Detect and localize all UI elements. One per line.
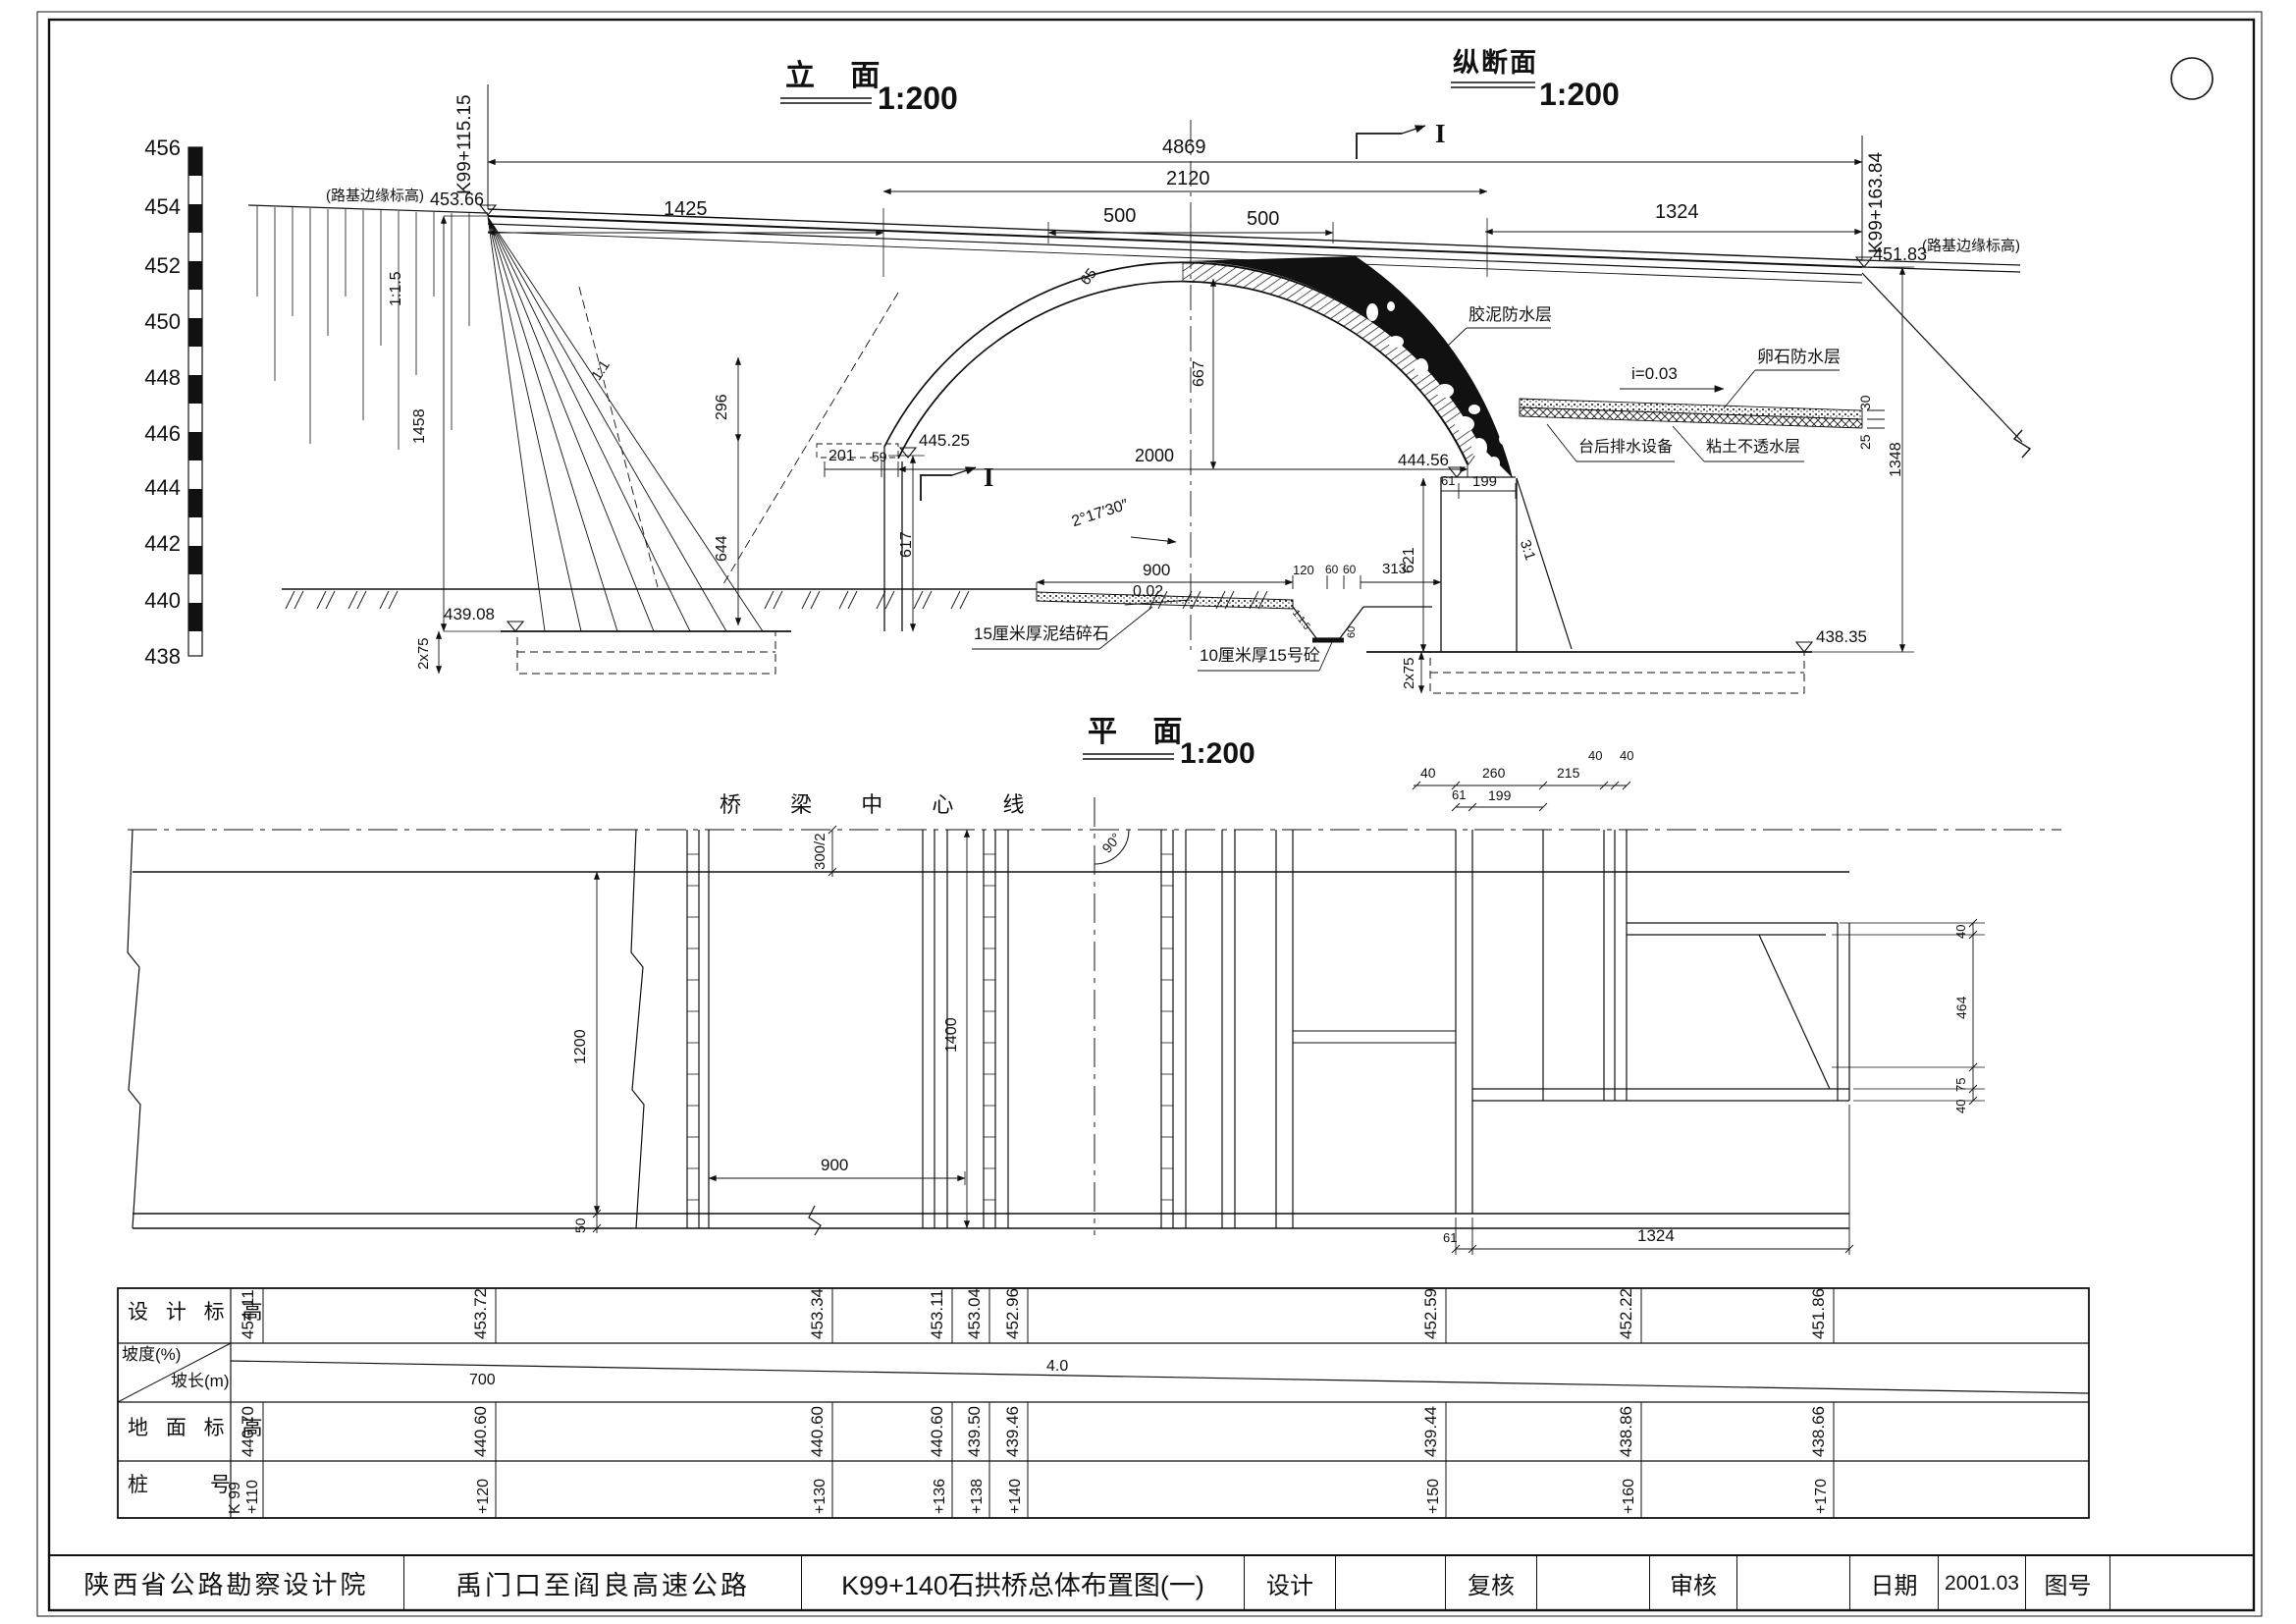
ground-elev: 440.60	[929, 1406, 945, 1457]
section-mark-bottom: I	[984, 463, 994, 491]
profile-title: 纵断面	[1453, 49, 1538, 77]
ground-elev: 440.60	[472, 1406, 489, 1457]
section-mark-top: I	[1435, 120, 1446, 147]
ground-elev: 438.86	[1618, 1406, 1634, 1457]
dim-201: 201	[828, 449, 855, 465]
design-elev: 453.11	[929, 1289, 945, 1339]
dim-61-plan: 61	[1452, 788, 1466, 802]
axis-tick: 442	[139, 532, 181, 555]
figure-number-label: 图号	[2026, 1556, 2110, 1610]
drawing-sheet: 立 面 1:200 纵断面 1:200 平 面 1:200 I I 456 45…	[0, 0, 2296, 1624]
date-label: 日期	[1850, 1556, 1939, 1610]
ground-elev: 440.60	[809, 1406, 826, 1457]
label-pebble-waterproof: 卵石防水层	[1757, 349, 1841, 366]
station: +130	[813, 1479, 828, 1514]
design-elev: 451.86	[1810, 1288, 1827, 1339]
axis-tick: 448	[139, 366, 181, 389]
dim-2120: 2120	[1166, 169, 1210, 189]
design-signature	[1336, 1556, 1446, 1610]
axis-tick: 438	[139, 645, 181, 668]
axis-tick: 444	[139, 476, 181, 499]
label-abutment-drain: 台后排水设备	[1578, 440, 1673, 457]
dim-617: 617	[899, 531, 915, 558]
dim-40e: 40	[1954, 1100, 1967, 1113]
label-grade-i003: i=0.03	[1631, 365, 1678, 383]
dim-1348: 1348	[1889, 442, 1904, 477]
dim-40d: 40	[1954, 925, 1967, 939]
title-block: 陕西省公路勘察设计院 禹门口至阎良高速公路 K99+140石拱桥总体布置图(一)…	[49, 1554, 2254, 1610]
dim-59: 59	[872, 450, 887, 464]
left-edge-note: (路基边缘标高)	[326, 189, 424, 204]
check-signature	[1537, 1556, 1650, 1610]
station: +150	[1426, 1479, 1442, 1514]
dim-75: 75	[1954, 1078, 1967, 1092]
station-prefix: K 99	[228, 1482, 243, 1514]
elevation-445.25: 445.25	[919, 432, 970, 450]
row-grade-length: 坡长(m)	[171, 1373, 229, 1390]
ground-elev: 439.46	[1004, 1406, 1021, 1457]
project-name: 禹门口至阎良高速公路	[404, 1556, 802, 1610]
dim-61-bottom: 61	[1443, 1231, 1457, 1245]
ground-elev: 438.66	[1810, 1406, 1827, 1457]
elevation-439.08: 439.08	[444, 606, 495, 623]
drawing-title: K99+140石拱桥总体布置图(一)	[802, 1556, 1245, 1610]
axis-tick: 456	[139, 136, 181, 159]
note-macadam: 15厘米厚泥结碎石	[974, 625, 1109, 643]
dim-300-2: 300/2	[813, 833, 828, 870]
right-edge-note: (路基边缘标高)	[1922, 239, 2020, 254]
design-elev: 452.22	[1618, 1288, 1634, 1339]
dim-667: 667	[1192, 360, 1207, 387]
ground-elev: 439.44	[1422, 1406, 1439, 1457]
design-elev: 453.34	[809, 1288, 826, 1339]
dim-4869: 4869	[1162, 137, 1206, 158]
dim-40c: 40	[1620, 749, 1633, 763]
dim-2x75-right: 2x75	[1402, 657, 1416, 689]
dim-1324: 1324	[1655, 202, 1699, 223]
dim-50: 50	[573, 1218, 587, 1233]
dim-1458: 1458	[412, 408, 428, 444]
design-institute: 陕西省公路勘察设计院	[49, 1556, 404, 1610]
row-station: 桩 号	[128, 1475, 231, 1496]
dim-1324-plan: 1324	[1637, 1227, 1675, 1245]
axis-tick: 450	[139, 310, 181, 333]
dim-500-left: 500	[1103, 206, 1136, 227]
plan-scale: 1:200	[1180, 738, 1255, 770]
elevation-scale: 1:200	[878, 82, 958, 116]
station: +140	[1008, 1479, 1024, 1514]
review-label: 审核	[1650, 1556, 1737, 1610]
dim-60a: 60	[1325, 564, 1338, 576]
ditch-depth-60: 60	[1347, 626, 1358, 638]
axis-tick: 440	[139, 589, 181, 612]
dim-215: 215	[1557, 766, 1579, 781]
elevation-444.56: 444.56	[1398, 452, 1449, 469]
slope-1-1.5: 1:1.5	[389, 271, 404, 306]
dim-260: 260	[1482, 766, 1505, 781]
station: +136	[933, 1479, 948, 1514]
check-label: 复核	[1446, 1556, 1537, 1610]
dim-313: 313	[1382, 562, 1407, 577]
dim-40a: 40	[1420, 766, 1436, 781]
grade-0.02: 0.02	[1133, 584, 1163, 601]
right-station: K99+163.84	[1867, 152, 1886, 253]
station: +160	[1622, 1479, 1637, 1514]
dim-1200: 1200	[573, 1029, 589, 1064]
dim-464: 464	[1954, 997, 1968, 1019]
label-clay-waterproof: 胶泥防水层	[1468, 306, 1552, 324]
station: +110	[245, 1480, 261, 1514]
dim-2000: 2000	[1135, 447, 1174, 465]
dim-296: 296	[715, 394, 730, 420]
dim-25: 25	[1858, 434, 1872, 450]
dim-900-plan: 900	[821, 1157, 848, 1174]
profile-scale: 1:200	[1539, 79, 1620, 112]
left-station: K99+115.15	[455, 94, 474, 194]
design-elev: 452.96	[1004, 1288, 1021, 1339]
right-edge-elevation: 451.83	[1873, 245, 1927, 264]
design-elev: 453.72	[472, 1288, 489, 1339]
station: +120	[476, 1479, 492, 1514]
bridge-centerline-label: 桥 梁 中 心 线	[720, 793, 1045, 816]
dim-60b: 60	[1343, 564, 1356, 576]
axis-tick: 452	[139, 254, 181, 277]
dim-199: 199	[1472, 474, 1497, 490]
grade-length-700: 700	[469, 1373, 496, 1389]
label-impervious-clay: 粘土不透水层	[1706, 440, 1800, 457]
dim-199-plan: 199	[1488, 788, 1511, 803]
row-grade-pct: 坡度(%)	[122, 1346, 181, 1364]
station: +170	[1814, 1479, 1830, 1514]
ground-elev: 440.70	[240, 1406, 256, 1457]
figure-number-value	[2110, 1556, 2254, 1610]
note-concrete: 10厘米厚15号砼	[1200, 647, 1320, 665]
dim-1400: 1400	[944, 1017, 960, 1053]
elevation-438.35: 438.35	[1816, 628, 1867, 646]
design-elev: 454.11	[240, 1289, 256, 1339]
elevation-scale-bar	[188, 147, 202, 656]
design-elev: 453.04	[966, 1288, 983, 1339]
dim-644: 644	[715, 535, 730, 562]
grade-4.0: 4.0	[1046, 1359, 1068, 1376]
dim-1425: 1425	[664, 199, 708, 220]
design-label: 设计	[1245, 1556, 1336, 1610]
ground-elev: 439.50	[966, 1406, 983, 1457]
date-value: 2001.03	[1939, 1556, 2026, 1610]
dim-500-right: 500	[1247, 209, 1279, 230]
dim-61: 61	[1441, 474, 1455, 488]
dim-120: 120	[1293, 564, 1314, 577]
design-elev: 452.59	[1422, 1288, 1439, 1339]
dim-900-elev: 900	[1143, 562, 1170, 579]
punch-circle	[2171, 58, 2213, 99]
station: +138	[970, 1479, 986, 1514]
dim-2x75-left: 2x75	[416, 637, 431, 670]
review-signature	[1737, 1556, 1850, 1610]
axis-tick: 446	[139, 422, 181, 445]
axis-tick: 454	[139, 195, 181, 218]
dim-30: 30	[1858, 395, 1872, 410]
dim-40b: 40	[1588, 749, 1602, 763]
